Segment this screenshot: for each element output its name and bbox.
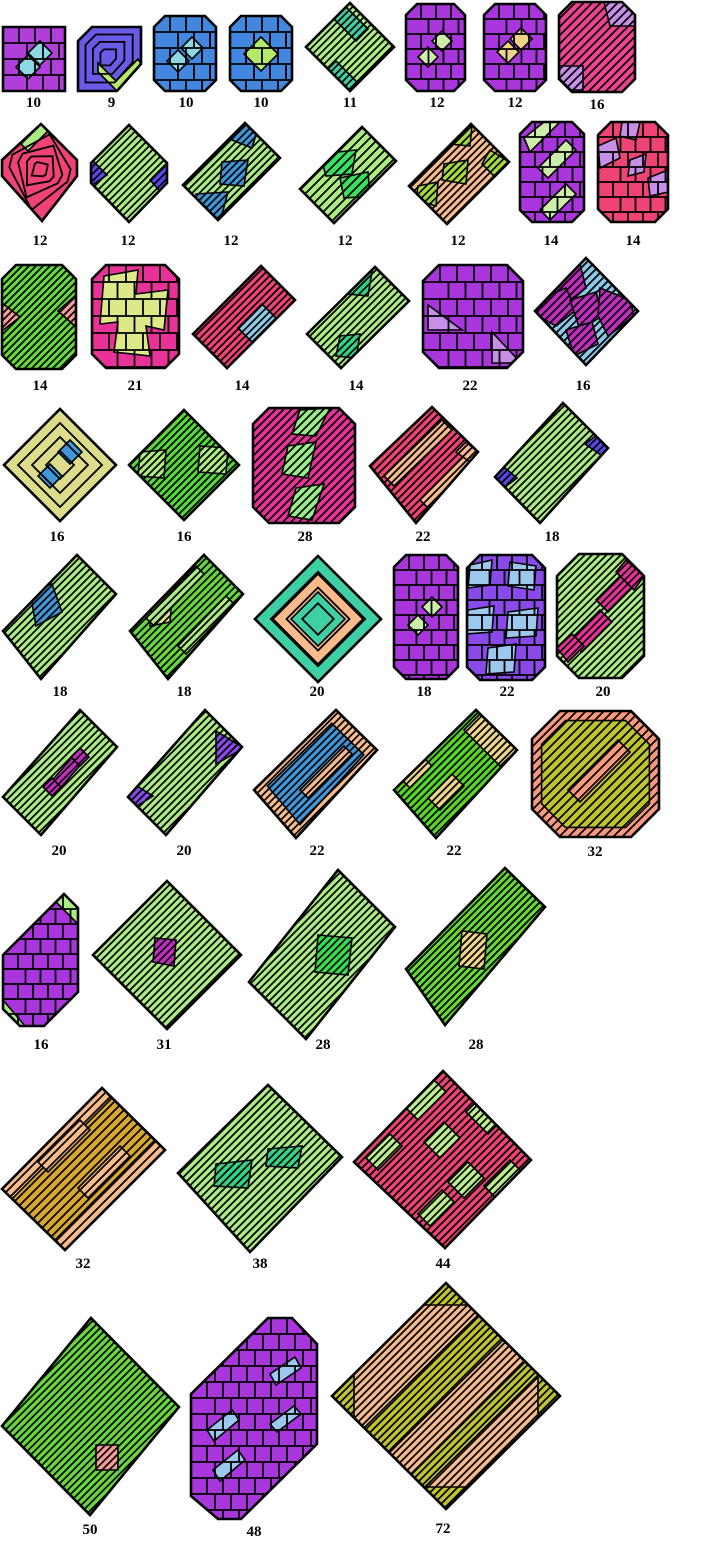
svg-text:16: 16: [590, 97, 606, 113]
svg-text:20: 20: [596, 684, 611, 700]
svg-text:22: 22: [416, 529, 431, 545]
svg-text:44: 44: [436, 1256, 452, 1272]
svg-text:22: 22: [463, 378, 478, 394]
svg-text:22: 22: [447, 843, 462, 859]
svg-text:14: 14: [33, 378, 49, 394]
svg-text:10: 10: [254, 95, 269, 111]
svg-text:22: 22: [500, 684, 515, 700]
svg-text:16: 16: [34, 1037, 50, 1053]
svg-text:28: 28: [316, 1037, 331, 1053]
svg-text:72: 72: [436, 1521, 451, 1537]
svg-text:18: 18: [417, 684, 432, 700]
svg-text:14: 14: [626, 233, 642, 249]
svg-text:31: 31: [157, 1037, 172, 1053]
svg-text:20: 20: [52, 843, 67, 859]
svg-text:9: 9: [108, 95, 116, 111]
svg-text:12: 12: [508, 95, 523, 111]
svg-text:21: 21: [128, 378, 143, 394]
svg-text:16: 16: [576, 378, 592, 394]
svg-text:20: 20: [310, 684, 325, 700]
svg-text:12: 12: [224, 233, 239, 249]
svg-text:14: 14: [349, 378, 365, 394]
svg-text:14: 14: [544, 233, 560, 249]
svg-text:12: 12: [430, 95, 445, 111]
svg-text:32: 32: [76, 1256, 91, 1272]
svg-text:20: 20: [177, 843, 192, 859]
svg-text:12: 12: [33, 233, 48, 249]
svg-text:50: 50: [83, 1522, 98, 1538]
svg-text:16: 16: [50, 529, 66, 545]
svg-text:18: 18: [177, 684, 192, 700]
svg-text:11: 11: [343, 95, 357, 111]
svg-text:22: 22: [310, 843, 325, 859]
svg-text:16: 16: [177, 529, 193, 545]
svg-text:18: 18: [545, 529, 560, 545]
svg-text:12: 12: [121, 233, 136, 249]
svg-text:48: 48: [247, 1524, 262, 1540]
svg-text:28: 28: [298, 529, 313, 545]
svg-text:14: 14: [235, 378, 251, 394]
svg-text:32: 32: [588, 844, 603, 860]
svg-text:10: 10: [26, 95, 41, 111]
svg-text:38: 38: [253, 1256, 268, 1272]
svg-text:10: 10: [179, 95, 194, 111]
svg-text:12: 12: [338, 233, 353, 249]
svg-text:12: 12: [451, 233, 466, 249]
svg-text:18: 18: [53, 684, 68, 700]
svg-text:28: 28: [469, 1037, 484, 1053]
